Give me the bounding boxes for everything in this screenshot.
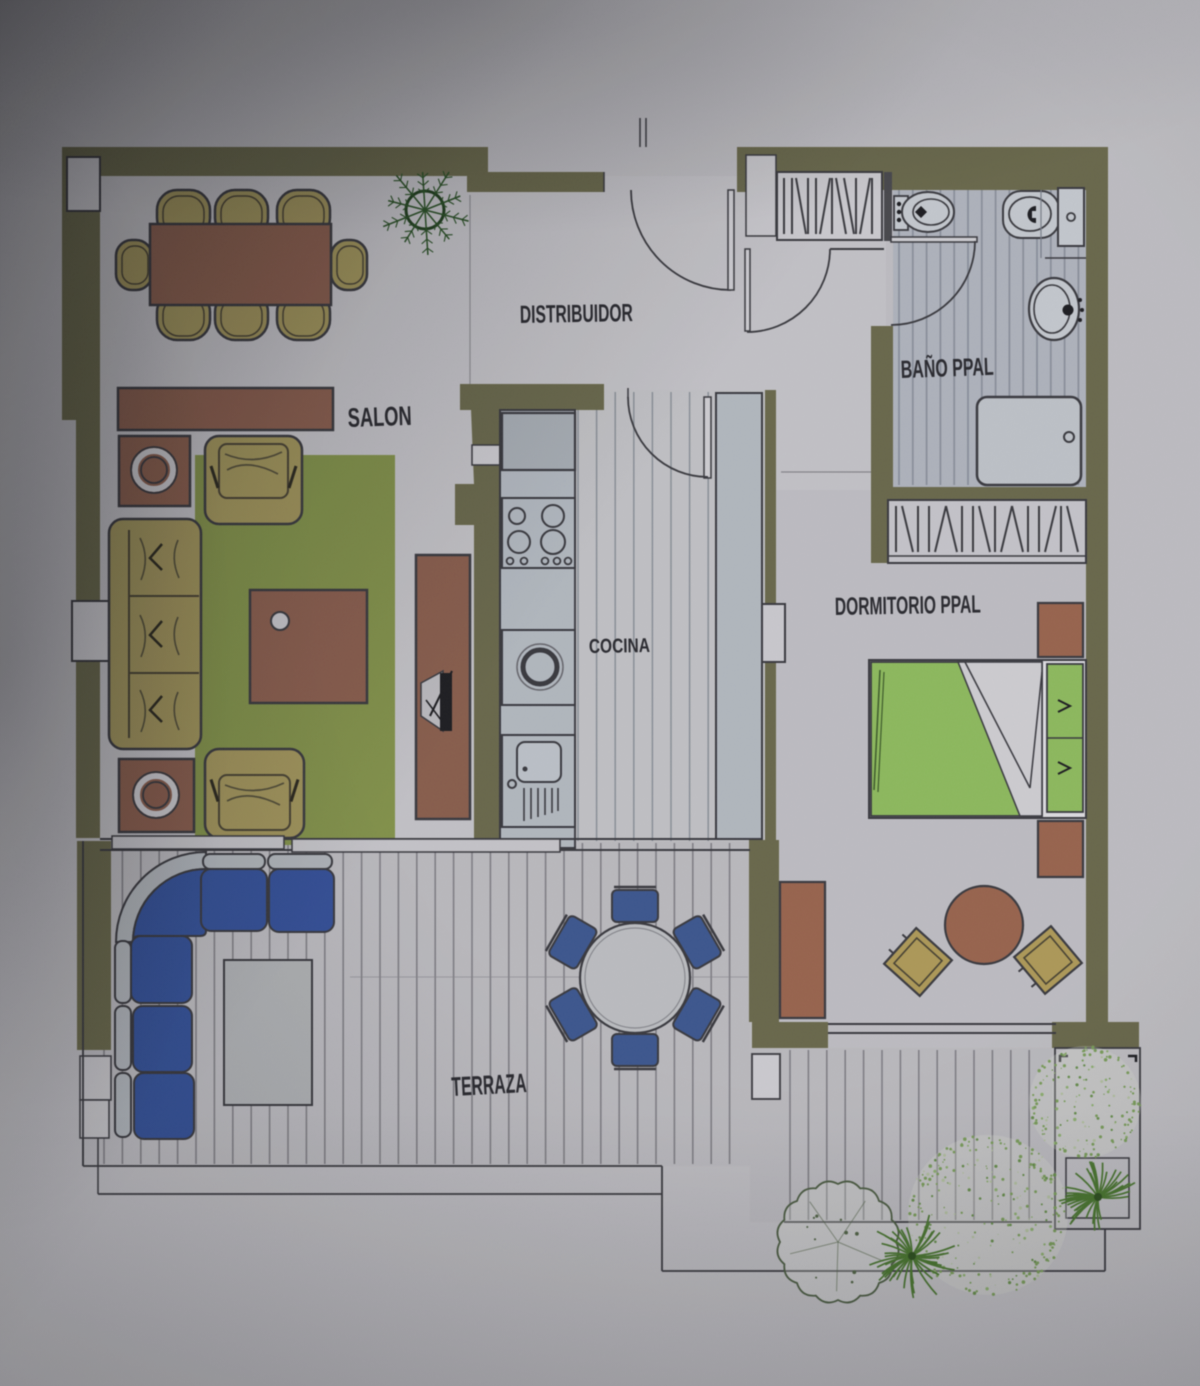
svg-text:BAÑO PPAL: BAÑO PPAL (900, 351, 994, 384)
svg-text:TERRAZA: TERRAZA (451, 1068, 527, 1102)
svg-text:COCINA: COCINA (589, 635, 650, 658)
svg-text:SALON: SALON (347, 401, 412, 433)
svg-text:DORMITORIO PPAL: DORMITORIO PPAL (835, 590, 981, 621)
svg-text:DISTRIBUIDOR: DISTRIBUIDOR (520, 299, 633, 329)
